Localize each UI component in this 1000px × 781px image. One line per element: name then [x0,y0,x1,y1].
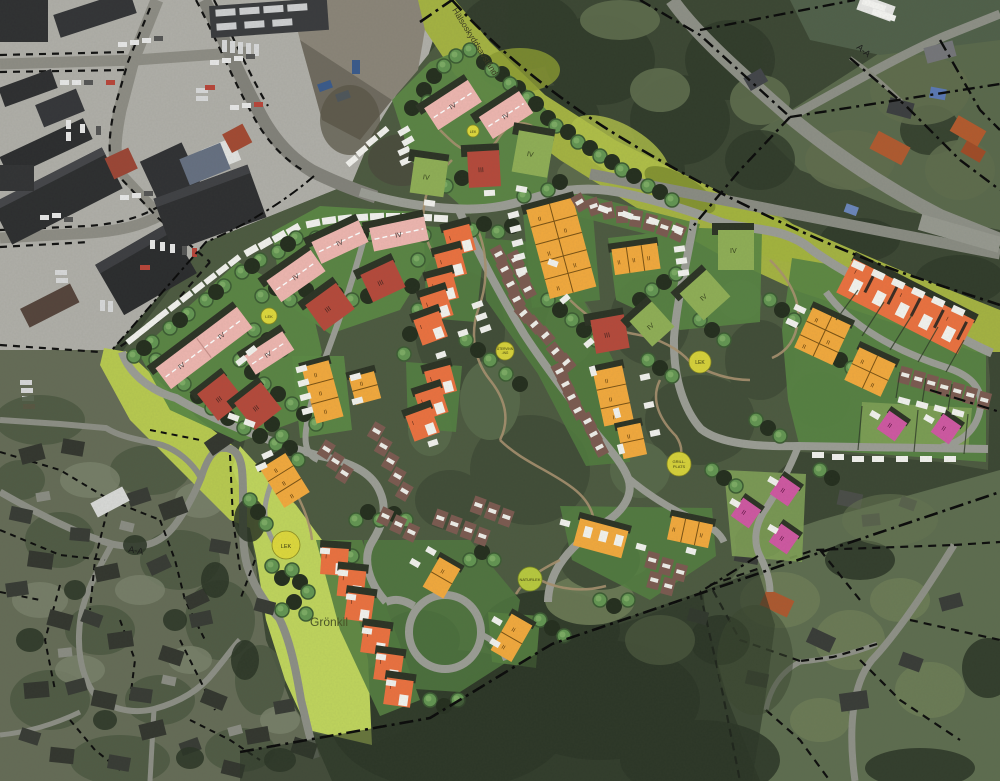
svg-text:LEK: LEK [470,130,477,134]
svg-text:Grönkil: Grönkil [310,615,348,629]
svg-text:LEK: LEK [695,360,705,366]
svg-text:IV: IV [422,174,430,182]
svg-text:IV: IV [730,248,737,255]
svg-text:PLATS: PLATS [673,464,686,469]
svg-text:III: III [478,167,484,174]
svg-text:LEK: LEK [281,544,292,550]
svg-text:NATURLEK: NATURLEK [519,577,540,582]
svg-text:-ING: -ING [502,351,509,355]
svg-text:LEK: LEK [265,314,273,319]
